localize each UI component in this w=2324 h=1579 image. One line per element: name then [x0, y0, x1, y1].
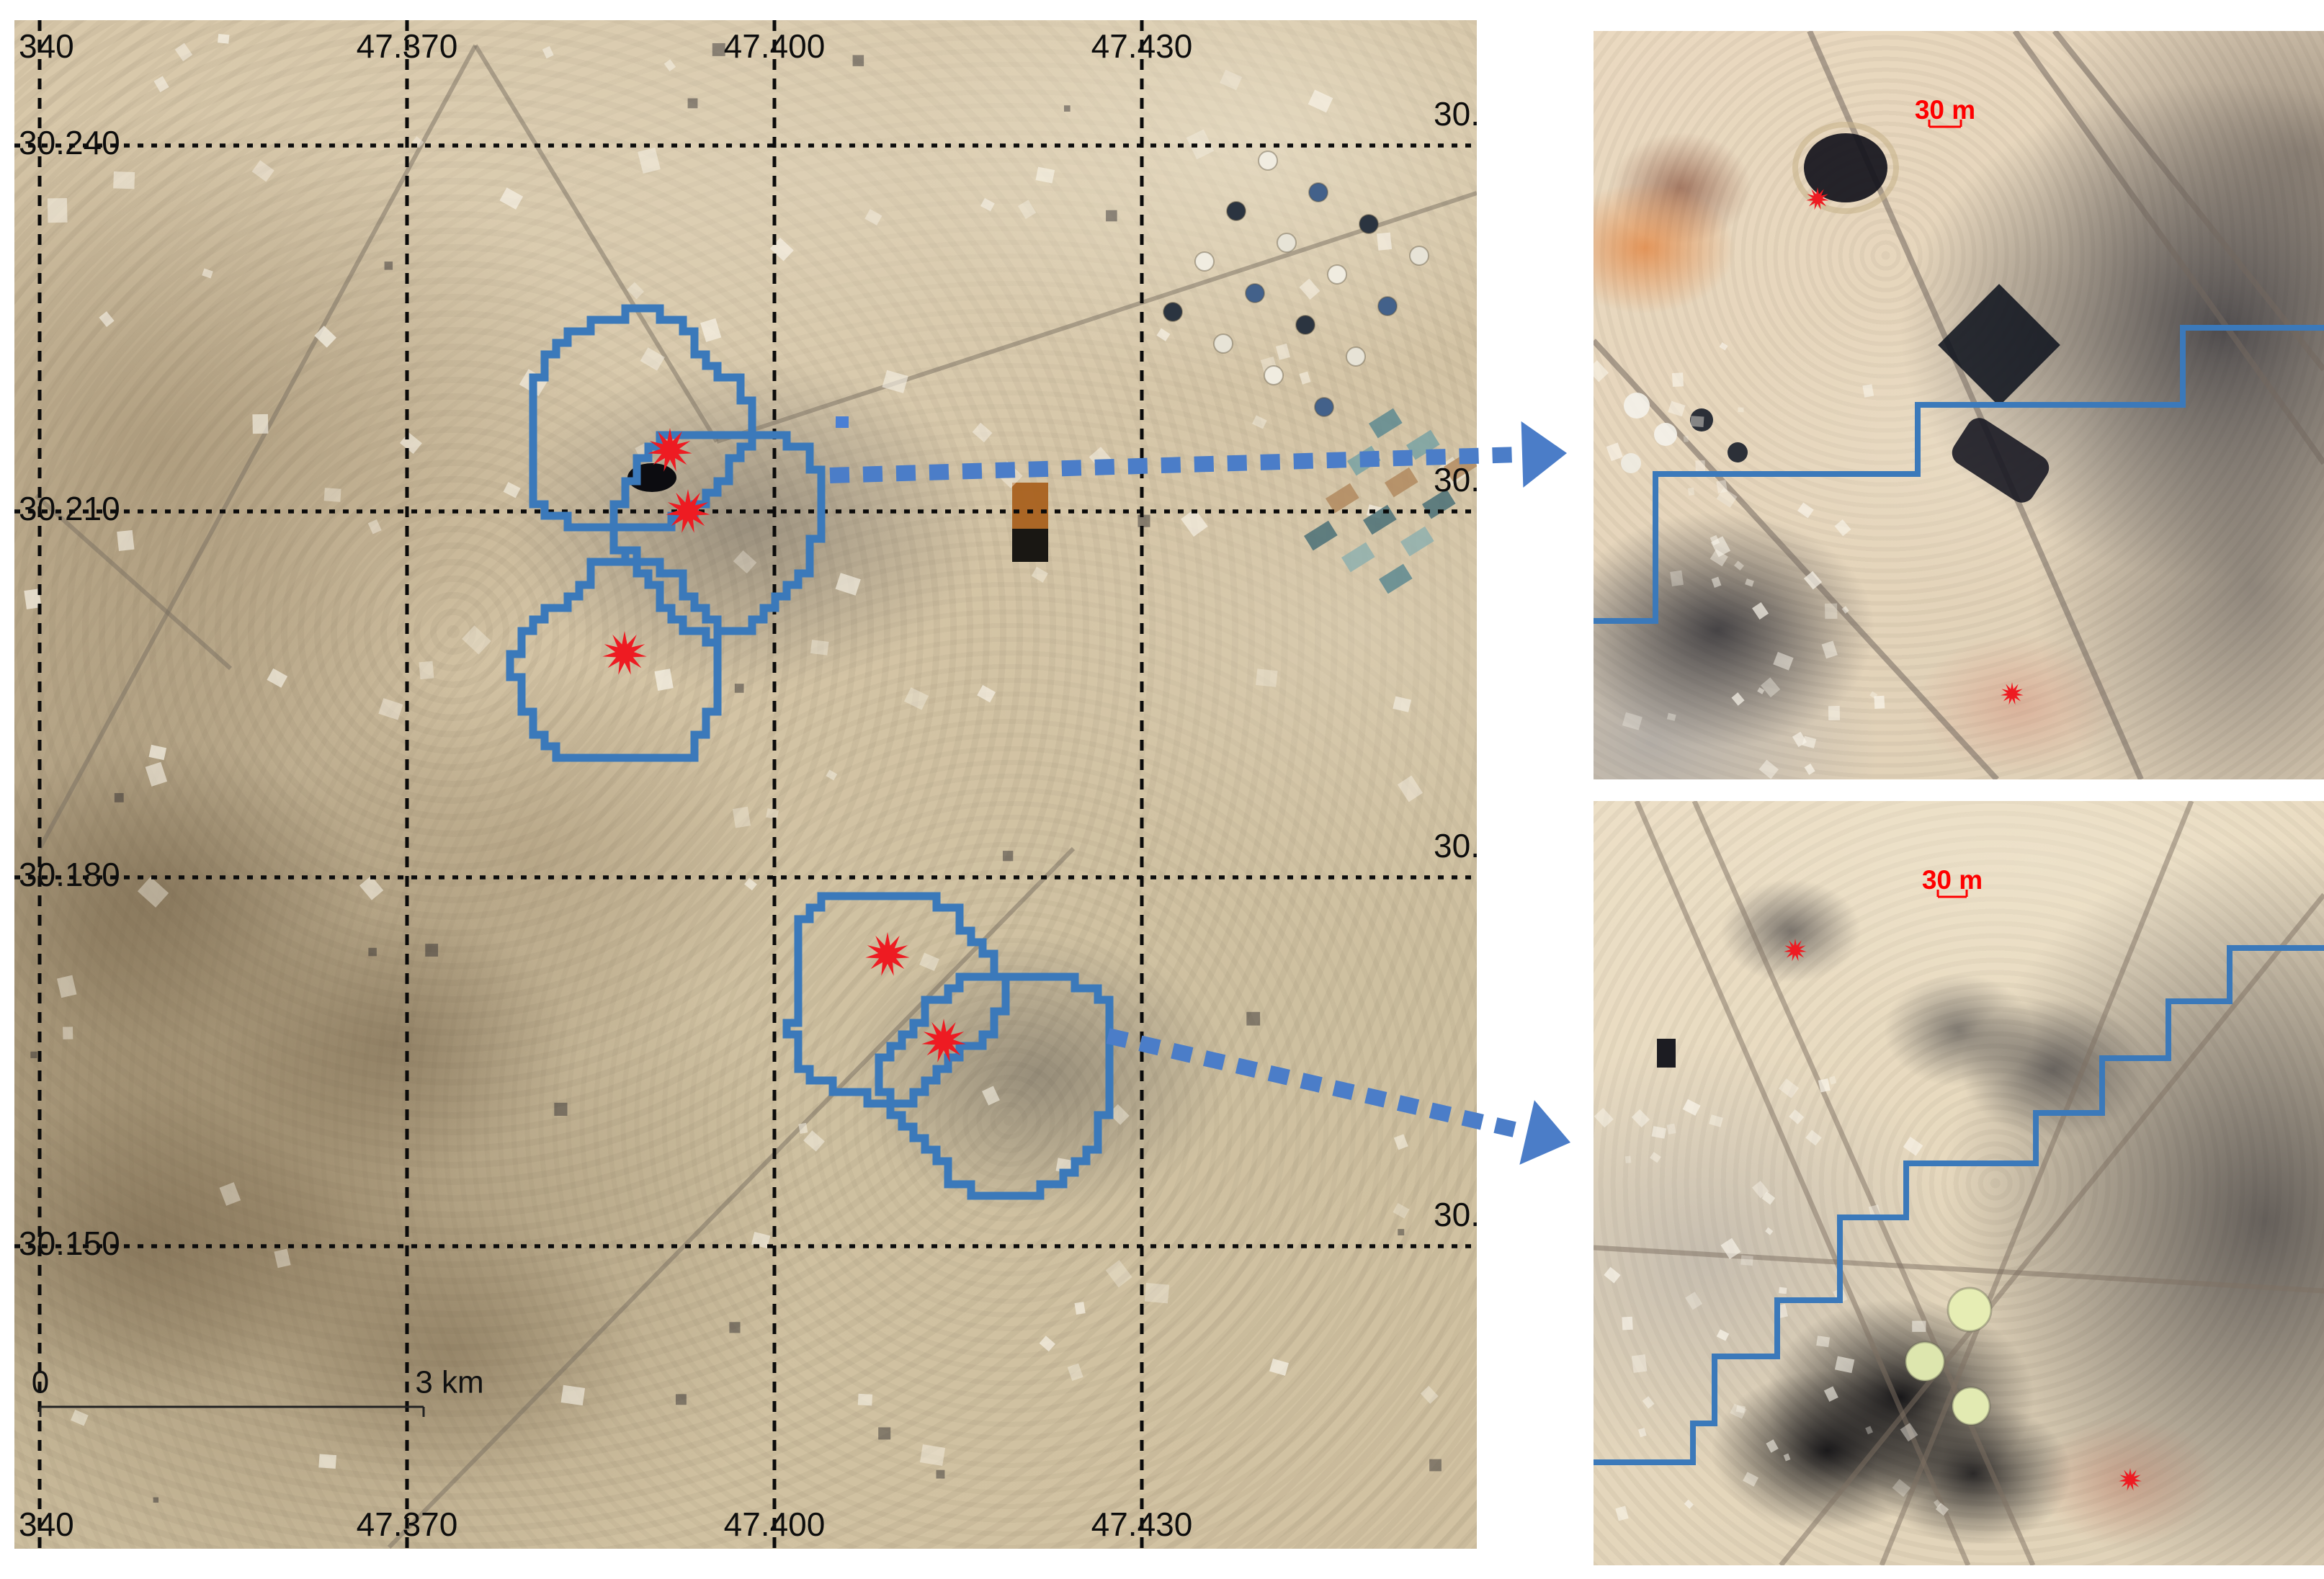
longitude-label-top: 47.400 [724, 27, 826, 65]
dark-speck [1064, 105, 1071, 112]
image-boundary-line [1594, 948, 2324, 1462]
building-patch [1759, 760, 1779, 779]
building-patch [1797, 502, 1814, 518]
building-patch [1594, 1108, 1614, 1127]
building-patch [218, 34, 229, 44]
building-patch [71, 1410, 89, 1426]
building-patch [499, 187, 523, 210]
building-patch [977, 685, 996, 702]
latitude-label-right: 30. [1434, 827, 1477, 864]
storage-tank [1315, 398, 1333, 416]
dark-speck [878, 1427, 890, 1439]
building-patch [504, 482, 521, 498]
dark-speck [1398, 1229, 1404, 1235]
building-patch [1685, 1292, 1702, 1310]
building-patch [1709, 1114, 1723, 1127]
latitude-label-left: 30.150 [19, 1225, 120, 1262]
storage-tank [1359, 215, 1378, 233]
building-patch [1632, 1109, 1650, 1127]
latitude-label-left: 30.210 [19, 490, 120, 527]
building-patch [798, 1123, 808, 1134]
building-patch [882, 370, 908, 393]
building-patch [1912, 1321, 1926, 1332]
building-patch [175, 43, 192, 61]
building-patch [1752, 602, 1769, 619]
building-patch [113, 171, 135, 189]
dark-speck [1106, 210, 1117, 222]
dark-speck [1003, 851, 1013, 861]
longitude-label-bottom: 340 [19, 1506, 74, 1543]
storage-tank [1328, 265, 1346, 284]
building-patch [324, 488, 341, 502]
building-patch [1667, 713, 1676, 721]
road-line [475, 45, 717, 442]
building-patch [919, 953, 939, 971]
inset-scale-label: 30 m [1915, 95, 1975, 125]
storage-tank [1905, 1342, 1944, 1381]
building-patch [1269, 1359, 1289, 1376]
building-patch [267, 668, 287, 688]
storage-tank [1654, 423, 1677, 446]
building-patch [1638, 1428, 1647, 1437]
inset-top-overlay: 30 m [1594, 31, 2324, 779]
building-patch [274, 1249, 290, 1269]
building-patch [1220, 70, 1242, 90]
building-patch [1822, 640, 1838, 658]
main-map-overlay: 34034047.37047.37047.40047.40047.43047.4… [14, 20, 1477, 1549]
dark-speck [30, 1052, 37, 1058]
building-patch [1145, 1283, 1169, 1303]
dark-speck [115, 793, 124, 802]
building-patch [1018, 200, 1036, 219]
dark-speck [735, 684, 744, 693]
scale-bar-zero-label: 0 [32, 1365, 49, 1400]
building-patch [1667, 1124, 1676, 1135]
building-patch [655, 668, 674, 691]
dark-speck [368, 948, 376, 956]
building-patch [318, 1454, 336, 1468]
building-patch [1903, 1137, 1923, 1156]
building-patch [733, 807, 751, 828]
building-patch [1650, 1152, 1661, 1163]
storage-tank [1296, 316, 1315, 334]
dark-speck [1657, 1039, 1676, 1068]
building-patch [1032, 567, 1048, 583]
field-patch [1406, 430, 1440, 460]
longitude-label-bottom: 47.430 [1091, 1506, 1193, 1543]
building-patch [1761, 677, 1780, 697]
dark-speck [676, 1394, 687, 1405]
storage-tank [1624, 393, 1650, 419]
building-patch [153, 76, 169, 93]
storage-tank [1728, 442, 1748, 462]
building-patch [1738, 408, 1743, 413]
longitude-label-top: 340 [19, 27, 74, 65]
inset-scale-label: 30 m [1922, 865, 1983, 895]
storage-tank [1246, 284, 1264, 303]
building-patch [1594, 360, 1609, 382]
storage-tank [1410, 246, 1429, 265]
field-patch [1347, 446, 1381, 476]
building-patch [1276, 344, 1290, 360]
storage-tank [1163, 303, 1182, 321]
building-patch [1075, 1302, 1086, 1315]
building-patch [920, 1444, 945, 1466]
building-patch [314, 326, 336, 347]
building-patch [219, 1182, 241, 1206]
building-patch [744, 878, 757, 890]
building-patch [1398, 776, 1423, 802]
road-line [1781, 895, 2324, 1565]
inset-top-panel: 30 m [1594, 31, 2324, 779]
building-patch [1824, 1386, 1838, 1402]
building-patch [419, 661, 434, 679]
building-patch [1805, 1130, 1821, 1145]
building-patch [462, 625, 491, 654]
building-patch [996, 461, 1023, 488]
building-patch [1802, 736, 1817, 748]
building-patch [904, 687, 929, 710]
building-patch [1816, 1336, 1830, 1347]
dark-speck [729, 1322, 740, 1333]
building-patch [1695, 460, 1705, 473]
building-patch [202, 268, 213, 278]
fire-cluster-outline [533, 308, 752, 527]
building-patch [1779, 1287, 1787, 1294]
building-patch [1632, 1354, 1648, 1373]
dark-speck [425, 944, 438, 957]
fire-point-marker [2001, 682, 2024, 704]
building-patch [1765, 1227, 1773, 1235]
building-patch [1789, 1109, 1804, 1124]
storage-tank [1309, 183, 1328, 202]
inset-bottom-panel: 30 m [1594, 801, 2324, 1565]
building-patch [1615, 1506, 1628, 1521]
field-patch [1304, 521, 1338, 551]
building-patch [1779, 1078, 1799, 1098]
building-patch [1036, 167, 1055, 184]
building-patch [1829, 1076, 1837, 1085]
dark-speck [1138, 515, 1150, 527]
building-patch [664, 59, 676, 71]
building-patch [1684, 436, 1689, 442]
terrain-decor [24, 34, 1477, 1547]
building-patch [1040, 1336, 1055, 1351]
dark-speck [1429, 1459, 1442, 1472]
fire-point-marker [602, 631, 646, 675]
storage-tank [1264, 366, 1283, 385]
building-patch [803, 1130, 825, 1151]
building-patch [1825, 604, 1837, 619]
dark-speck [554, 1103, 567, 1116]
building-patch [1745, 578, 1754, 586]
building-patch [117, 530, 134, 551]
building-patch [138, 877, 169, 908]
building-patch [1683, 1099, 1701, 1116]
terrain-decor [1594, 801, 2324, 1565]
building-patch [1862, 384, 1874, 398]
building-patch [1805, 764, 1815, 775]
building-patch [826, 769, 837, 780]
latitude-label-right: 30. [1434, 461, 1477, 498]
building-patch [1743, 1472, 1758, 1486]
inset-link-arrow-head [1519, 1100, 1570, 1165]
storage-tank [1227, 202, 1246, 220]
building-patch [980, 198, 995, 211]
building-patch [1773, 652, 1793, 671]
building-patch [1421, 1386, 1439, 1404]
building-patch [1688, 488, 1695, 496]
building-patch [1393, 1203, 1409, 1219]
longitude-label-bottom: 47.370 [357, 1506, 458, 1543]
building-patch [1835, 519, 1851, 536]
storage-tank [1214, 334, 1233, 353]
building-patch [1690, 416, 1704, 427]
latitude-label-right: 30. [1434, 95, 1477, 133]
building-patch [1068, 1364, 1083, 1381]
building-patch [1874, 696, 1885, 709]
inset-link-arrow-head [1521, 421, 1567, 488]
building-patch [982, 1086, 1000, 1106]
building-patch [48, 198, 68, 223]
building-patch [1106, 1260, 1132, 1287]
building-patch [1622, 1317, 1632, 1330]
road-line [1694, 801, 2033, 1565]
road-line [1594, 1248, 2324, 1291]
building-patch [146, 762, 167, 787]
oil-pond [1947, 413, 2054, 507]
main-map-panel: 34034047.37047.37047.40047.40047.43047.4… [14, 20, 1477, 1549]
building-patch [252, 160, 274, 182]
building-patch [1393, 696, 1411, 712]
figure-canvas: 34034047.37047.37047.40047.40047.43047.4… [0, 0, 2324, 1579]
dark-speck [936, 1470, 944, 1479]
building-patch [1720, 342, 1728, 350]
building-patch [733, 550, 757, 573]
building-patch [1652, 1126, 1667, 1139]
building-patch [1716, 480, 1728, 493]
building-patch [1672, 372, 1684, 387]
building-patch [858, 1394, 872, 1406]
building-patch [1684, 1500, 1694, 1509]
building-patch [1828, 706, 1840, 720]
building-patch [1299, 372, 1310, 385]
dark-speck [153, 1498, 158, 1503]
scale-bar [40, 1407, 424, 1417]
storage-tank [1195, 252, 1214, 271]
building-patch [359, 876, 383, 900]
building-patch [1717, 1329, 1730, 1341]
building-patch [766, 808, 779, 819]
building-patch [1252, 415, 1267, 429]
building-patch [542, 46, 554, 58]
building-patch [1712, 577, 1722, 588]
building-patch [700, 318, 721, 342]
road-line [2055, 31, 2324, 370]
storage-tank [1948, 1288, 1991, 1331]
latitude-label-left: 30.240 [19, 124, 120, 161]
fire-point-marker [2119, 1468, 2142, 1490]
building-patch [1256, 668, 1278, 687]
storage-tank [1378, 297, 1397, 316]
building-patch [368, 519, 382, 534]
building-patch [1766, 1439, 1778, 1453]
building-patch [1643, 1396, 1655, 1408]
building-patch [1394, 1134, 1408, 1150]
building-patch [1740, 1255, 1753, 1266]
building-patch [836, 573, 861, 596]
building-patch [1734, 560, 1744, 571]
dark-speck [1246, 1012, 1260, 1026]
longitude-label-top: 47.370 [357, 27, 458, 65]
building-patch [1731, 692, 1744, 706]
building-patch [1300, 279, 1320, 300]
field-patch [1326, 483, 1359, 514]
building-patch [1865, 1426, 1873, 1434]
building-patch [1606, 442, 1623, 461]
building-patch [973, 423, 993, 442]
inset-bottom-overlay: 30 m [1594, 801, 2324, 1565]
building-patch [99, 311, 114, 327]
building-patch [638, 148, 661, 174]
dark-speck [853, 55, 864, 66]
building-patch [252, 414, 268, 434]
dark-speck [688, 98, 698, 108]
longitude-label-bottom: 47.400 [724, 1506, 826, 1543]
storage-tank [1621, 453, 1641, 473]
field-patch [1385, 468, 1418, 498]
building-patch [1622, 712, 1643, 730]
road-line [2015, 31, 2324, 463]
building-patch [1604, 1267, 1620, 1284]
fire-point-marker [1784, 939, 1807, 961]
longitude-label-top: 47.430 [1091, 27, 1193, 65]
building-patch [378, 698, 403, 720]
storage-tank [1259, 151, 1277, 170]
road-line [1882, 801, 2191, 1565]
oil-pond [1804, 133, 1887, 202]
building-patch [1156, 328, 1170, 341]
building-patch [400, 432, 422, 454]
building-patch [148, 745, 166, 760]
building-patch [1668, 401, 1685, 417]
fire-cluster-outline [787, 896, 1006, 1104]
storage-tank [1952, 1387, 1990, 1425]
road-line [1637, 801, 1968, 1565]
building-patch [1670, 571, 1684, 586]
building-patch [864, 209, 882, 225]
field-patch [1379, 564, 1413, 594]
field-patch [1400, 527, 1434, 557]
latitude-label-right: 30. [1434, 1196, 1477, 1233]
dark-speck [385, 261, 393, 269]
latitude-label-left: 30.180 [19, 856, 120, 893]
building-patch [1308, 89, 1333, 112]
building-patch [561, 1385, 586, 1405]
building-patch [1377, 233, 1392, 251]
building-patch [63, 1026, 73, 1039]
building-patch [1835, 1356, 1854, 1373]
storage-tank [1277, 233, 1296, 252]
storage-tank [1346, 347, 1365, 366]
building-patch [1784, 1454, 1791, 1462]
building-patch [57, 975, 77, 998]
building-patch [1089, 447, 1114, 472]
field-patch [1369, 408, 1403, 439]
fire-point-marker [865, 932, 909, 976]
building-patch [1625, 1156, 1632, 1163]
oil-pond [1938, 284, 2060, 406]
building-patch [810, 640, 829, 656]
scale-bar-km-label: 3 km [415, 1365, 483, 1400]
field-patch [1341, 542, 1375, 573]
